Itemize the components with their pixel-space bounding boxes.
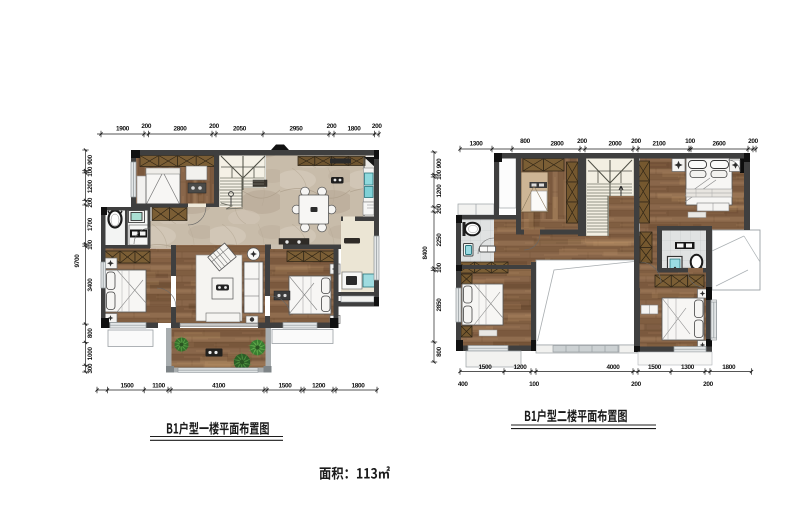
svg-text:200: 200 (703, 381, 714, 388)
svg-text:200: 200 (327, 123, 338, 130)
svg-text:100: 100 (685, 138, 696, 145)
svg-text:2800: 2800 (550, 141, 564, 148)
svg-text:900: 900 (436, 158, 443, 169)
svg-text:2050: 2050 (233, 126, 247, 133)
svg-text:200: 200 (631, 381, 642, 388)
svg-text:2600: 2600 (712, 141, 726, 148)
svg-text:1800: 1800 (722, 364, 736, 371)
svg-text:2800: 2800 (173, 126, 187, 133)
svg-text:100: 100 (436, 169, 443, 180)
svg-text:1000: 1000 (87, 347, 94, 361)
svg-text:100: 100 (87, 239, 94, 250)
svg-text:8400: 8400 (422, 246, 429, 260)
svg-text:400: 400 (458, 381, 469, 388)
svg-text:900: 900 (87, 154, 94, 165)
svg-text:3400: 3400 (87, 278, 94, 292)
svg-text:1500: 1500 (648, 364, 662, 371)
svg-text:800: 800 (436, 346, 443, 357)
svg-text:200: 200 (209, 123, 220, 130)
svg-text:2000: 2000 (608, 141, 622, 148)
svg-text:2950: 2950 (289, 126, 303, 133)
svg-text:200: 200 (631, 138, 642, 145)
svg-text:1300: 1300 (469, 141, 483, 148)
svg-text:1500: 1500 (478, 364, 492, 371)
svg-text:200: 200 (577, 138, 588, 145)
svg-text:1500: 1500 (278, 383, 292, 390)
svg-text:200: 200 (748, 138, 759, 145)
svg-text:2100: 2100 (652, 141, 666, 148)
svg-text:200: 200 (436, 203, 443, 214)
svg-text:1200: 1200 (513, 364, 527, 371)
svg-text:2850: 2850 (436, 298, 443, 312)
svg-text:4100: 4100 (212, 383, 226, 390)
svg-text:2250: 2250 (436, 233, 443, 247)
svg-text:1800: 1800 (351, 383, 365, 390)
svg-text:1200: 1200 (436, 184, 443, 198)
svg-text:4000: 4000 (606, 364, 620, 371)
svg-text:100: 100 (87, 166, 94, 177)
svg-text:200: 200 (141, 123, 152, 130)
svg-text:1500: 1500 (120, 383, 134, 390)
svg-text:200: 200 (87, 197, 94, 208)
svg-text:100: 100 (436, 262, 443, 273)
svg-text:1300: 1300 (681, 364, 695, 371)
svg-text:200: 200 (372, 123, 383, 130)
svg-text:1100: 1100 (152, 383, 165, 390)
svg-text:300: 300 (87, 363, 94, 374)
svg-text:800: 800 (520, 138, 531, 145)
svg-text:1200: 1200 (312, 383, 326, 390)
svg-text:1200: 1200 (87, 179, 94, 193)
svg-text:9700: 9700 (74, 254, 81, 268)
svg-text:100: 100 (529, 381, 540, 388)
svg-text:1900: 1900 (116, 126, 130, 133)
svg-text:1800: 1800 (347, 126, 361, 133)
svg-text:800: 800 (87, 328, 94, 339)
svg-text:1700: 1700 (87, 217, 94, 231)
